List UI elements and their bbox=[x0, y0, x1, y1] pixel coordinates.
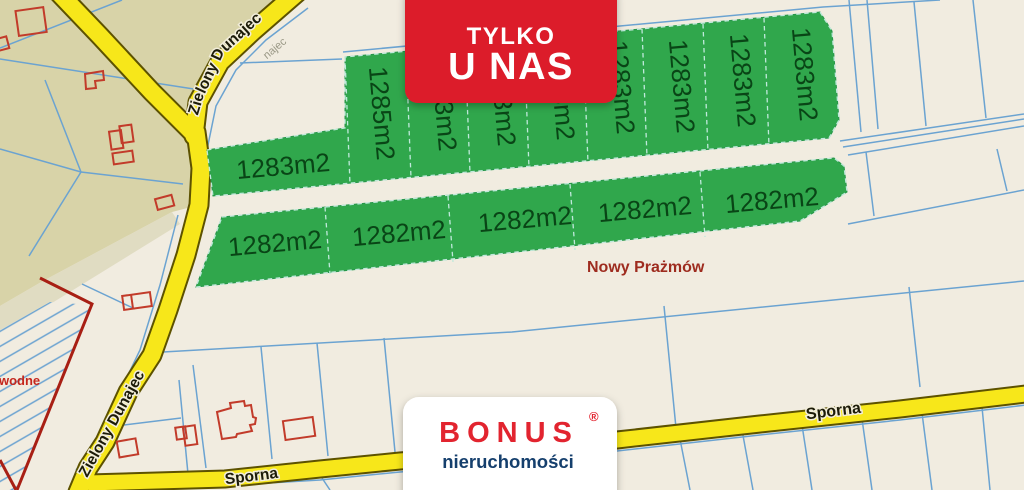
svg-text:BONUS: BONUS bbox=[439, 417, 579, 449]
svg-text:U NAS: U NAS bbox=[448, 46, 574, 88]
svg-text:wodne: wodne bbox=[0, 373, 40, 388]
svg-text:Nowy Prażmów: Nowy Prażmów bbox=[587, 259, 705, 276]
svg-text:®: ® bbox=[589, 409, 599, 424]
svg-text:nieruchomości: nieruchomości bbox=[442, 451, 574, 472]
